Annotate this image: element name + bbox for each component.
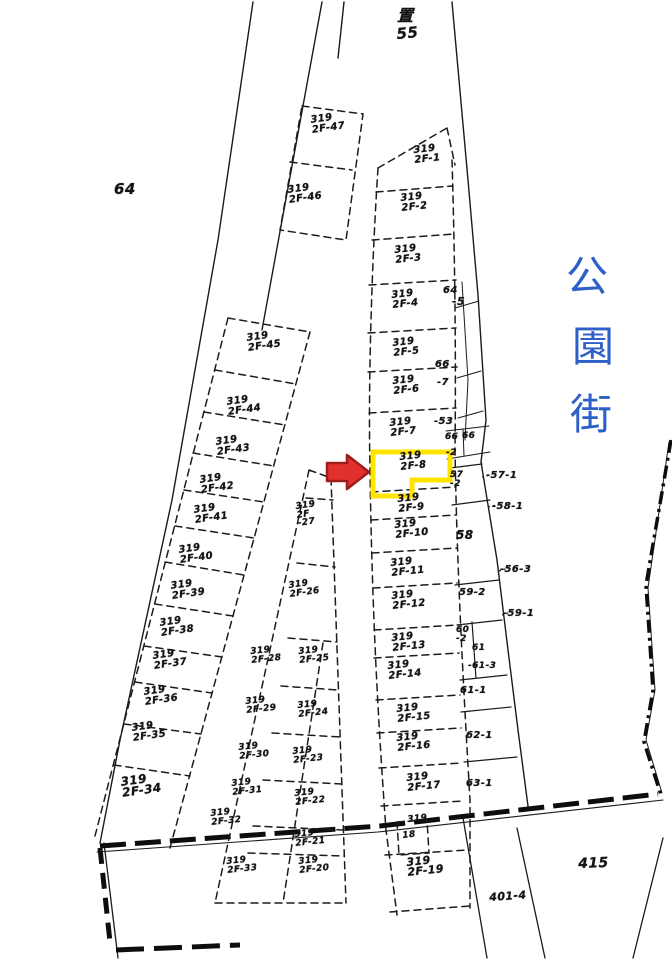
inner-boundary-line xyxy=(262,2,322,330)
parcel-dashed-lines xyxy=(95,106,470,915)
west-column-dividers xyxy=(114,370,296,776)
road-401-4-edges xyxy=(463,818,663,958)
north-band-47-46 xyxy=(280,106,363,240)
far-east-thin-line xyxy=(646,442,669,793)
west-column-edges xyxy=(95,318,310,848)
bottom-heavy-dashes xyxy=(116,945,240,950)
east-street-edge-lower xyxy=(481,462,528,806)
pointer-arrow-icon xyxy=(327,455,369,489)
highlight-box-parcel-2F-8 xyxy=(373,452,450,496)
east-street-edge-upper xyxy=(452,2,486,462)
cadastral-map: 置5564319 2F-47319 2F-46319 2F-1319 2F-23… xyxy=(0,0,672,960)
south-road-heavy-dashes xyxy=(100,794,658,846)
park-street-heavy-boundary xyxy=(644,440,671,795)
map-linework xyxy=(0,0,672,960)
west-road-heavy-dashes xyxy=(100,848,110,942)
main-column-west-edge xyxy=(369,168,397,915)
main-column-east-edge xyxy=(452,160,470,908)
heavy-road-strokes xyxy=(100,440,671,950)
short-top-line xyxy=(338,2,344,58)
solid-boundaries xyxy=(97,2,669,958)
main-column-apex xyxy=(378,128,455,168)
west-boundary-line xyxy=(100,2,253,843)
